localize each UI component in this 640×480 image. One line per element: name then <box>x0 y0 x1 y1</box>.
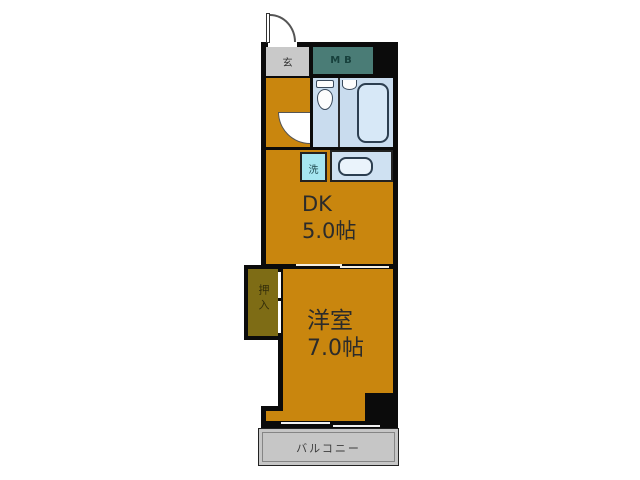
western-room-name: 洋室 <box>307 307 364 335</box>
western-room-extension <box>266 411 293 421</box>
laundry-label: 洗 <box>300 161 327 176</box>
balcony-label: バルコニー <box>259 440 398 456</box>
western-room-area-label: 7.0帖 <box>307 335 364 363</box>
sliding-door-icon <box>340 266 389 268</box>
balcony: バルコニー <box>258 428 399 466</box>
dk-label: DK 5.0帖 <box>302 191 356 245</box>
toilet-icon <box>316 80 334 88</box>
closet-door <box>278 301 281 333</box>
bathtub-icon <box>357 83 389 143</box>
closet-label: 押入 <box>255 284 271 314</box>
window-icon <box>281 422 330 424</box>
kitchen-sink-icon <box>338 157 373 176</box>
sliding-door-icon <box>296 264 342 266</box>
exterior-notch <box>240 340 278 406</box>
pillar <box>365 393 393 421</box>
floor-plan: 玄 MB 洗 押入 DK 5.0帖 洋室 7.0帖 バルコニー <box>0 0 640 480</box>
bathroom-partition <box>338 78 340 147</box>
closet-door <box>278 272 281 298</box>
western-room-label: 洋室 7.0帖 <box>307 307 364 363</box>
dk-name: DK <box>302 191 356 218</box>
meter-box-label: MB <box>313 55 373 66</box>
wash-basin-icon <box>342 80 357 90</box>
dk-area-label: 5.0帖 <box>302 218 356 245</box>
entrance-label: 玄 <box>266 54 309 69</box>
entrance-door-swing-icon <box>270 14 296 42</box>
entrance-opening <box>268 42 297 47</box>
window-icon <box>333 425 380 427</box>
